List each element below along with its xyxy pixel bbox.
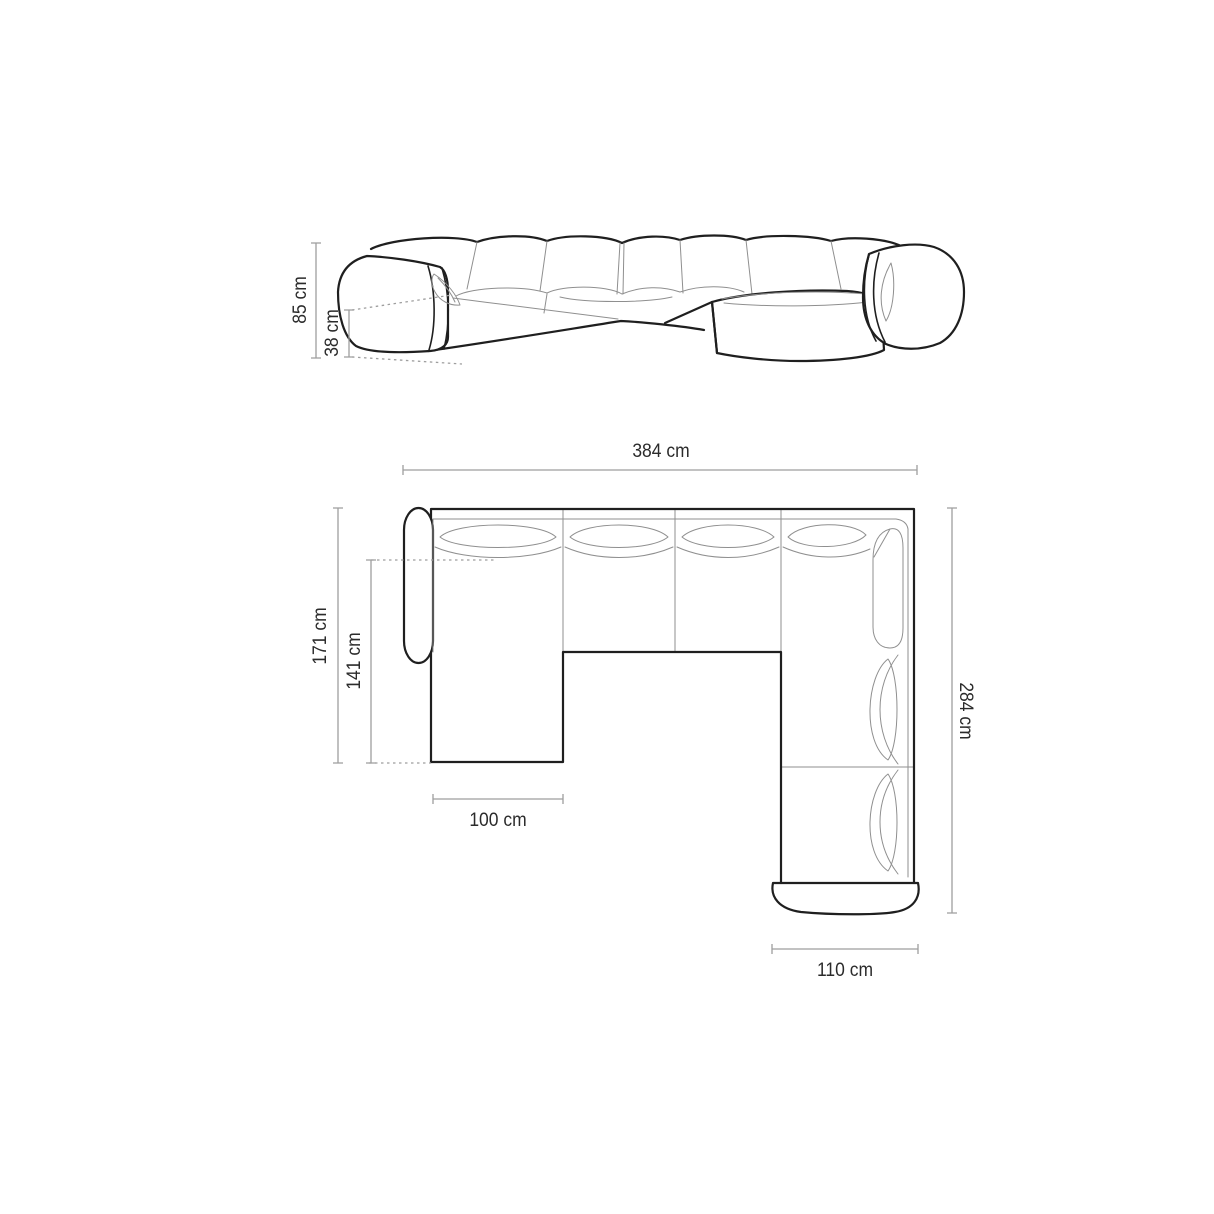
elevation-base-front-edge	[428, 321, 704, 351]
dim-label-left-chaise-length: 141 cm	[344, 632, 366, 689]
plan-back-cushions-top	[435, 525, 870, 558]
elevation-back-cushion-seams	[467, 240, 841, 294]
dim-label-right-chaise-width: 110 cm	[817, 960, 873, 982]
plan-left-arm-cushion	[404, 508, 433, 663]
elevation-view-drawing	[311, 236, 964, 365]
plan-view-drawing	[333, 465, 957, 954]
sofa-dimension-diagram: 85 cm 38 cm 384 cm 171 cm 141 cm 284 cm …	[0, 0, 1214, 1214]
dim-label-left-chaise-width: 100 cm	[469, 810, 526, 832]
plan-outline-inner	[431, 652, 781, 883]
elevation-chaise-left-edge	[665, 302, 712, 323]
elevation-seat-cushion-seams	[453, 287, 744, 319]
plan-right-arm-cap	[772, 883, 918, 914]
dim-label-left-depth: 171 cm	[310, 607, 332, 664]
diagram-canvas	[0, 0, 1214, 1214]
dim-label-seat-height: 38 cm	[322, 309, 344, 357]
elevation-right-arm	[863, 245, 964, 349]
dim-label-total-width: 384 cm	[632, 441, 689, 463]
dim-label-right-depth: 284 cm	[954, 682, 976, 739]
dim-label-total-height: 85 cm	[290, 276, 312, 324]
elevation-chaise-block	[712, 290, 884, 361]
plan-back-cushions-right	[870, 529, 903, 874]
elevation-backrest-outline	[371, 236, 939, 258]
